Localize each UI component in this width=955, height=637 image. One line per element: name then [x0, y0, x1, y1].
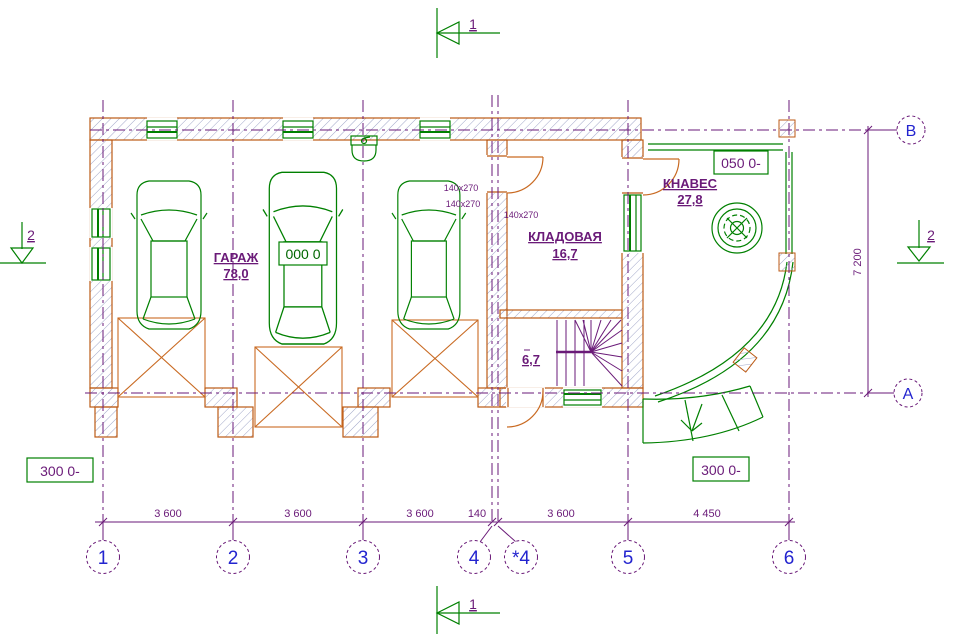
section-marks: 1 1 2 2: [0, 8, 944, 634]
bubble-4: 4: [469, 548, 480, 569]
door-tag-3: 140x270: [504, 210, 539, 220]
window-left-2: [92, 248, 110, 280]
pier-a-bottom: [218, 407, 253, 437]
dim-bay4: 3 600: [547, 508, 575, 520]
level-right: 300 0-: [693, 457, 749, 481]
section-label-bottom: 1: [469, 596, 477, 612]
canopy-arc-inner: [658, 262, 793, 402]
door-tag-2: 140x270: [446, 199, 481, 209]
dim-gap: 140: [468, 508, 486, 520]
window-left-1: [92, 209, 110, 237]
apron-2: [255, 347, 342, 427]
storage-name: КЛАДОВАЯ: [528, 229, 602, 244]
windows: [92, 121, 641, 405]
section-label-left: 2: [27, 227, 35, 243]
bubble-3: 3: [358, 548, 369, 569]
floor-plan-canvas: 000 0: [0, 0, 955, 637]
section-mark-left: 2: [0, 222, 46, 263]
bubble-4s: *4: [512, 548, 530, 569]
apron-1: [118, 318, 205, 397]
canopy-name: КНАВЕС: [663, 176, 718, 191]
canopy-column-1: [779, 120, 795, 137]
level-right-text: 300 0-: [701, 462, 741, 478]
window-stair-hall: [564, 390, 601, 405]
bubble-A: А: [903, 386, 914, 403]
license-plate: 000 0: [279, 242, 327, 265]
doors: [487, 156, 679, 427]
garage-area: 78,0: [223, 266, 248, 281]
bubble-2: 2: [228, 548, 239, 569]
bubble-5: 5: [623, 548, 634, 569]
dim-bay2: 3 600: [284, 508, 312, 520]
walls: [90, 118, 643, 437]
car-1: [131, 181, 207, 329]
pier-b-bottom: [343, 407, 378, 437]
apron-3: [392, 320, 478, 397]
level-left: 300 0-: [27, 458, 93, 482]
section-mark-top: 1: [437, 8, 500, 58]
bubble-6: 6: [784, 548, 795, 569]
dimensions: 3 600 3 600 3 600 140 3 600 4 450 7 200: [95, 126, 872, 526]
storage-area: 16,7: [552, 246, 577, 261]
door-tag-1: 140x270: [444, 183, 479, 193]
window-grid5: [624, 195, 641, 251]
staircase: [556, 320, 622, 386]
dim-bay1: 3 600: [154, 508, 182, 520]
section-mark-bottom: 1: [437, 586, 500, 634]
canopy-area: 27,8: [677, 192, 702, 207]
section-label-top: 1: [469, 16, 477, 32]
garage-name: ГАРАЖ: [214, 250, 259, 265]
dim-height: 7 200: [852, 248, 864, 276]
canopy-steps: [643, 386, 763, 443]
left-bottom-step: [95, 407, 117, 437]
canopy-column-3: [733, 348, 757, 372]
left-bottom-corner: [90, 388, 118, 407]
section-label-right: 2: [927, 227, 935, 243]
dim-bay5: 4 450: [693, 508, 721, 520]
bubble-B: В: [906, 123, 917, 140]
level-canopy-text: 050 0-: [721, 155, 761, 171]
pier-a-top: [205, 388, 237, 407]
floor-plan-viewport: 000 0: [0, 0, 955, 637]
canopy-column-2: [779, 253, 795, 271]
garage-aprons: [118, 318, 478, 427]
section-mark-right: 2: [897, 220, 944, 263]
canopy-ornament-icon: [712, 203, 762, 253]
bubble-1: 1: [98, 548, 109, 569]
dim-bay3: 3 600: [406, 508, 434, 520]
stair-area: 6,7: [522, 352, 540, 367]
level-left-text: 300 0-: [40, 463, 80, 479]
level-canopy: 050 0-: [714, 151, 768, 174]
license-plate-text: 000 0: [285, 246, 320, 262]
storage-stair-wall: [500, 310, 622, 318]
canopy-arc-outer: [655, 262, 787, 396]
